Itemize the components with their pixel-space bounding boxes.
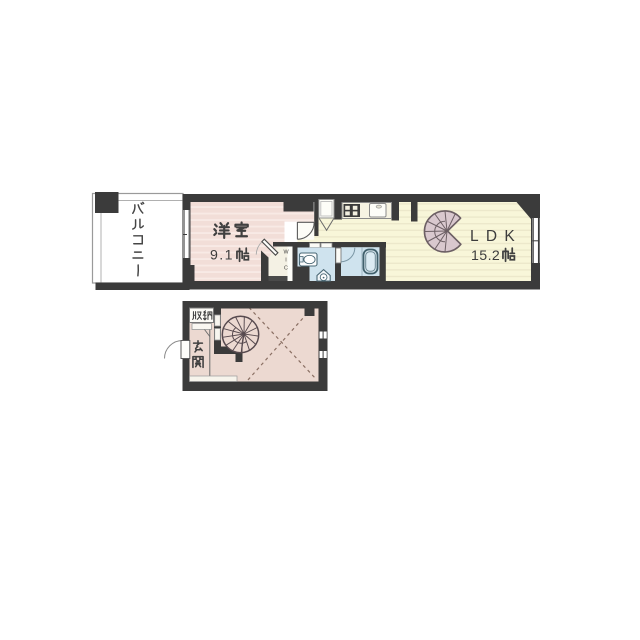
svg-text:LDK: LDK bbox=[470, 228, 522, 245]
svg-text:C: C bbox=[284, 266, 288, 272]
svg-text:I: I bbox=[285, 258, 287, 264]
svg-text:9.1: 9.1 bbox=[210, 248, 234, 264]
svg-text:15.2: 15.2 bbox=[471, 248, 500, 264]
